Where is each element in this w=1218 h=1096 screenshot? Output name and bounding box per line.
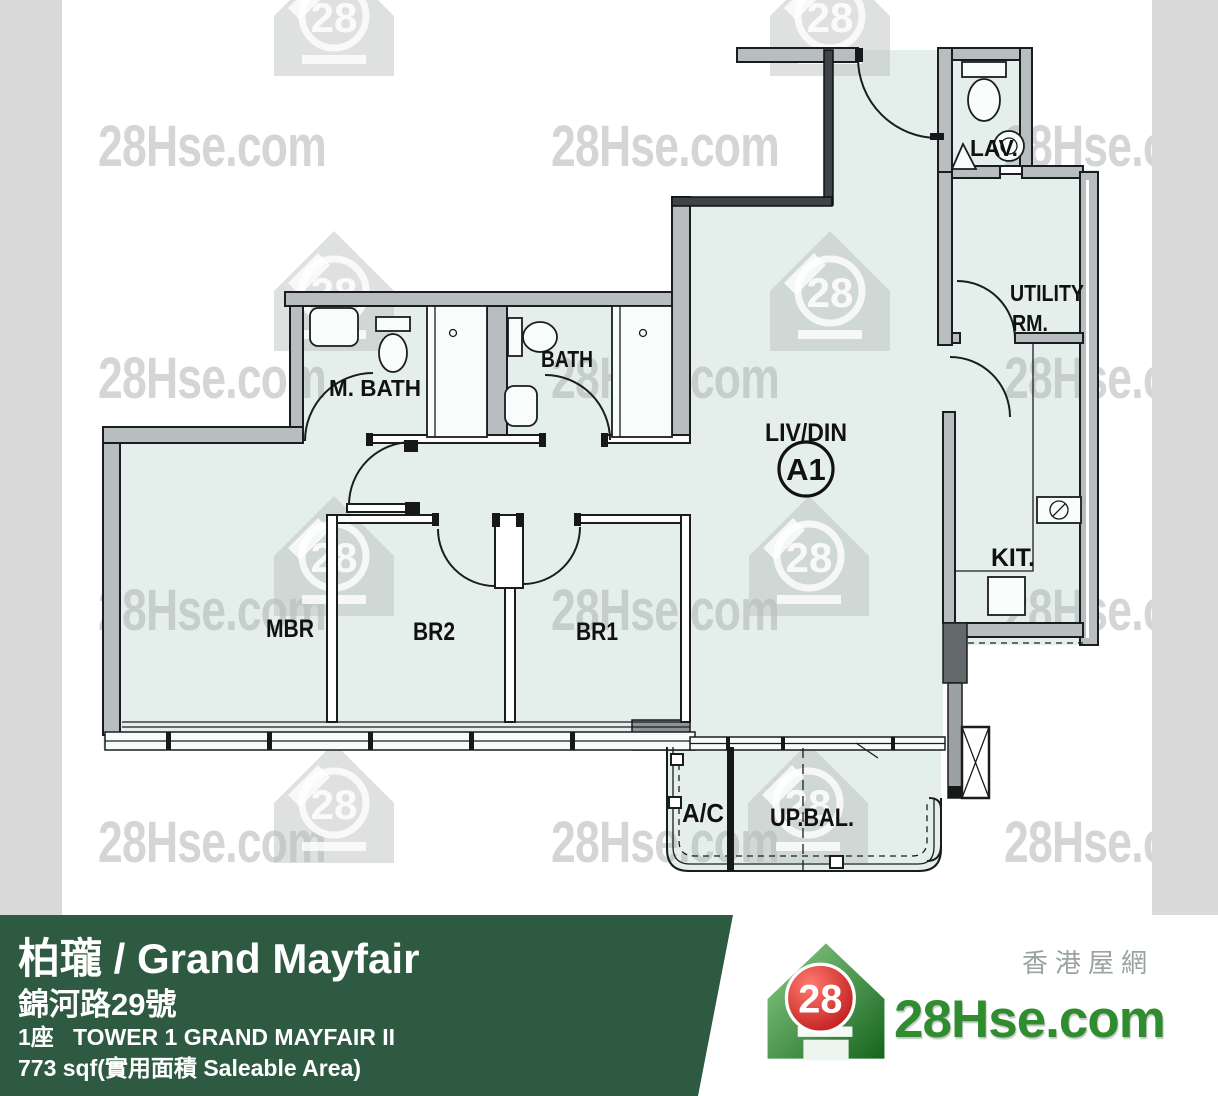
unit-label: A1 bbox=[786, 452, 826, 487]
footer-bar: 柏瓏 / Grand Mayfair 錦河路29號 1座 TOWER 1 GRA… bbox=[0, 915, 1218, 1096]
room-label-ac: A/C bbox=[682, 798, 724, 828]
watermark-text: 28Hse.com bbox=[98, 114, 326, 179]
28hse-house-icon: 28 bbox=[760, 936, 892, 1068]
watermark-text: 28Hse.com bbox=[551, 114, 779, 179]
footer-green-panel: 柏瓏 / Grand Mayfair 錦河路29號 1座 TOWER 1 GRA… bbox=[0, 915, 1218, 1096]
toilet-icon bbox=[376, 317, 410, 331]
tower-name: 1座 TOWER 1 GRAND MAYFAIR II bbox=[18, 1018, 395, 1052]
room-label-utility-2: RM. bbox=[1012, 310, 1048, 336]
estate-title: 柏瓏 / Grand Mayfair bbox=[18, 925, 419, 986]
room-label-lavatory: LAV. bbox=[970, 135, 1018, 161]
room-label-master-bath: M. BATH bbox=[329, 375, 421, 401]
left-gray-strip bbox=[0, 0, 62, 915]
shower-icon bbox=[427, 306, 487, 437]
floorplan-page: 28 28Hse.com 28Hse.com 28Hse.com 28Hse.c… bbox=[0, 0, 1218, 1096]
saleable-area: 773 sqf(實用面積 Saleable Area) bbox=[18, 1049, 361, 1083]
sink-icon bbox=[505, 386, 537, 426]
room-label-br2: BR2 bbox=[413, 618, 455, 646]
sink-icon bbox=[310, 308, 358, 346]
shower-icon bbox=[612, 306, 672, 437]
room-label-utility-1: UTILITY bbox=[1010, 280, 1084, 306]
floorplan-drawing: 28 28Hse.com 28Hse.com 28Hse.com 28Hse.c… bbox=[0, 0, 1218, 915]
room-label-kitchen: KIT. bbox=[991, 544, 1035, 572]
room-label-bath: BATH bbox=[541, 346, 593, 372]
room-label-br1: BR1 bbox=[576, 618, 618, 646]
appliance-icon bbox=[988, 577, 1025, 615]
toilet-icon bbox=[508, 318, 522, 356]
right-gray-strip bbox=[1152, 0, 1218, 915]
watermark-text: 28Hse.com bbox=[551, 810, 779, 875]
room-label-mbr: MBR bbox=[266, 615, 314, 643]
28hse-logo-text: 28Hse.com bbox=[894, 989, 1165, 1050]
room-label-balcony: UP.BAL. bbox=[770, 804, 854, 832]
28hse-tagline: 香港屋網 bbox=[1022, 943, 1154, 980]
ac-divider-wall bbox=[727, 747, 734, 871]
svg-text:28: 28 bbox=[798, 977, 842, 1021]
28-badge-icon bbox=[786, 964, 854, 1032]
toilet-icon bbox=[962, 62, 1006, 77]
